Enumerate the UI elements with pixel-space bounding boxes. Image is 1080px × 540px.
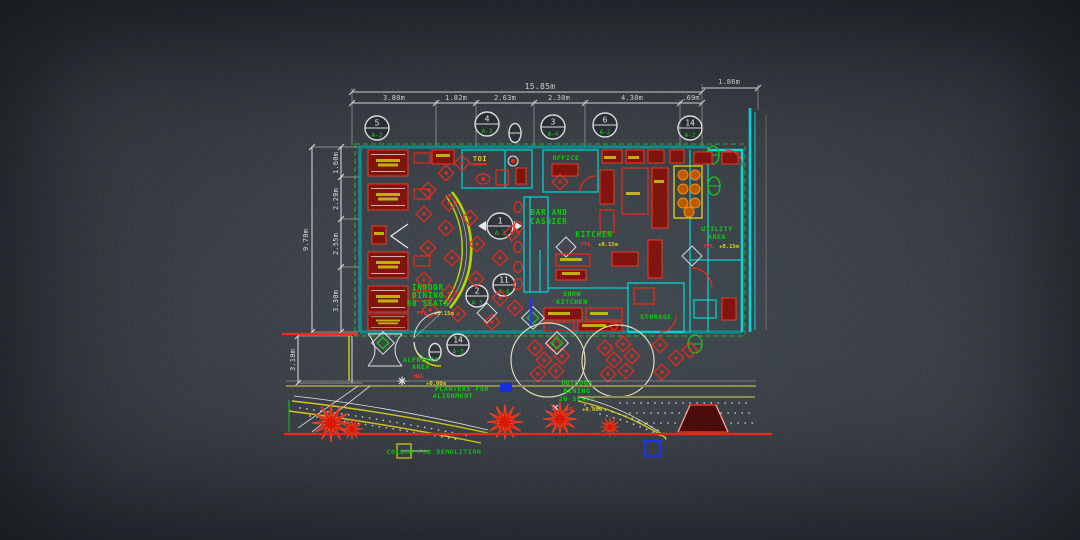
svg-text:+0.15m: +0.15m [719,244,740,250]
grid-bubble: 14A-2 [678,116,702,140]
ramp-icon [678,405,728,432]
room-label-utility: UTILITY [701,225,733,233]
room-label-kitchen: KITCHEN [575,230,612,239]
svg-text:AREA: AREA [708,233,726,241]
svg-text:4: 4 [485,115,490,124]
room-label-show-kitchen: SHOW [563,290,581,298]
svg-text:FFL: FFL [704,244,715,250]
svg-text:CASHIER: CASHIER [530,217,567,226]
svg-text:A-3: A-3 [453,349,464,356]
svg-text:AREA: AREA [412,363,430,371]
svg-text:KITCHEN: KITCHEN [556,298,588,306]
svg-text:6: 6 [603,116,608,125]
blue-marker [500,383,512,392]
grid-bubble: 3A-4 [541,115,565,139]
demolition-note: COLUMN FOR DEMOLITION [387,444,482,458]
monitor-photo: 15.85m 1.86m 3.80m 1.82m 2.63m 2.30m 4.3… [0,0,1080,540]
office-room: OFFICE [552,154,596,192]
svg-text:A-3: A-3 [482,128,493,135]
dim-right-offset: 1.86m [718,78,740,86]
room-label-storage: STORAGE [640,313,672,321]
grid-bubble: 6A-2 [593,113,617,137]
dim-seg: 2.55m [332,233,340,255]
svg-text:11: 11 [499,276,509,285]
svg-text:+0.15m: +0.15m [598,242,619,248]
room-label-office: OFFICE [552,154,579,162]
svg-text:A-3: A-3 [472,300,483,307]
svg-text:A-4: A-4 [548,131,559,138]
room-label-toi: TOI [473,155,487,163]
kitchen-equipment [600,150,702,232]
column-marker-blue [645,441,660,456]
svg-text:NGL: NGL [414,374,425,380]
svg-text:14: 14 [685,119,695,128]
svg-text:5: 5 [375,119,380,128]
dim-total-height: 9.70m [302,229,310,251]
svg-text:ALIGNMENT: ALIGNMENT [433,392,474,400]
dim-seg: 2.20m [332,188,340,210]
svg-text:1: 1 [498,217,503,226]
dim-seg: 3.80m [383,94,405,102]
dimension-left: 9.70m 1.60m 2.20m 2.55m 3.30m 3.10m [289,144,362,432]
room-label-bar: BAR AND [530,208,567,217]
road-and-markers [284,405,772,456]
outdoor-tables [527,336,698,382]
cad-floorplan-canvas: 15.85m 1.86m 3.80m 1.82m 2.63m 2.30m 4.3… [0,0,1080,540]
burner-icons [678,170,700,217]
toilet-room: TOI [471,155,526,185]
dim-seg: 4.30m [621,94,643,102]
svg-text:2: 2 [475,287,480,296]
dim-lower-height: 3.10m [289,349,297,371]
grid-bubble: 11A-4 [493,274,515,296]
kitchen-zone: KITCHEN FFL +0.15m [556,230,662,280]
dim-seg: .69m [682,94,700,102]
svg-text:FFL: FFL [581,242,592,248]
grid-bubble: 2A-3 [466,285,488,307]
svg-text:A-2: A-2 [600,129,611,136]
dim-seg: 2.63m [494,94,516,102]
svg-text:A-2: A-2 [685,132,696,139]
dim-seg: 1.60m [332,152,340,174]
dim-seg: 2.30m [548,94,570,102]
svg-text:A-3: A-3 [372,132,383,139]
grid-bubble: 5A-3 [365,116,389,140]
dim-seg: 3.30m [332,290,340,312]
svg-text:14: 14 [453,336,463,345]
level-tag: FFL [417,311,428,317]
dim-seg: 1.82m [445,94,467,102]
note-column-demolition: COLUMN FOR DEMOLITION [387,448,482,456]
section-marker: 1A-3 [478,213,522,239]
dim-total-width: 15.85m [525,82,556,91]
grid-bubble: 14A-3 [447,334,469,356]
svg-text:DINING: DINING [563,387,590,395]
storage-room: STORAGE [634,288,676,332]
grid-bubble: 4A-3 [475,112,499,136]
svg-text:3: 3 [551,118,556,127]
svg-text:60 SEATS: 60 SEATS [407,299,450,308]
